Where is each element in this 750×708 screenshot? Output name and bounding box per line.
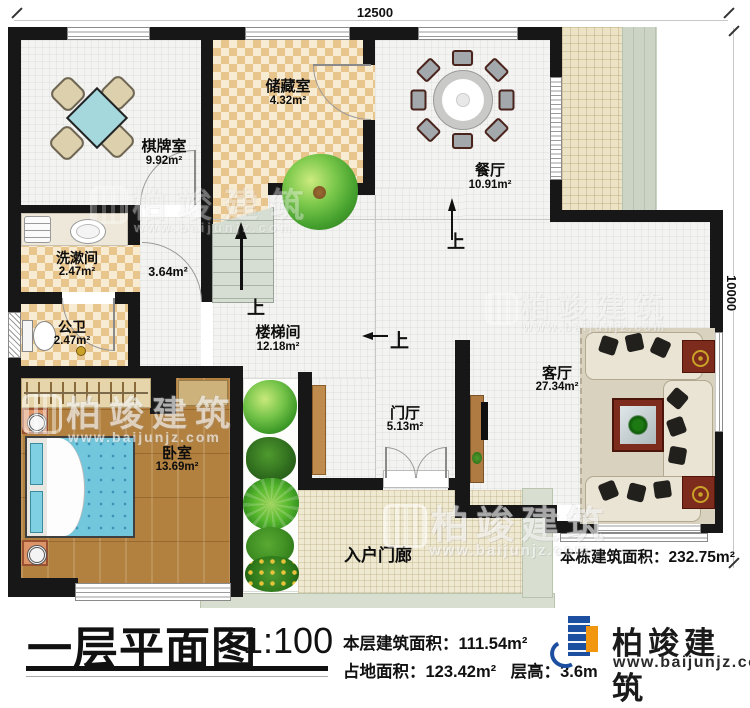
chair: [452, 50, 473, 66]
stat1-value: 111.54m²: [459, 635, 528, 653]
chair: [411, 90, 427, 111]
room-label: 入户门廊: [328, 547, 428, 566]
window: [550, 77, 562, 180]
floor-plan: 12500 10000: [0, 0, 750, 608]
pillow: [30, 443, 43, 485]
dimension-right-label: 10000: [724, 275, 739, 311]
wall: [455, 340, 470, 518]
pillow: [30, 491, 43, 533]
title-underline-thin: [26, 676, 328, 677]
wall: [350, 27, 418, 40]
watermark-logo-icon: [485, 292, 518, 325]
window: [245, 27, 350, 40]
wall: [710, 222, 723, 332]
wall: [8, 358, 21, 597]
room-area: 2.47m²: [45, 267, 109, 279]
up-arrow-head: [448, 198, 456, 211]
up-label: 上: [390, 326, 409, 353]
stat1-label: 本层建筑面积：: [343, 635, 459, 653]
stat2-label: 占地面积：: [343, 663, 426, 681]
bed: [25, 436, 135, 538]
room-area: 9.92m²: [134, 156, 194, 168]
window: [418, 27, 518, 40]
door-leaf: [113, 298, 115, 351]
shoe-cabinet: [312, 385, 326, 475]
wall: [298, 372, 312, 478]
entry-door-leaf: [385, 447, 387, 478]
watermark-logo-icon: [383, 504, 427, 548]
sofa-pillow: [668, 446, 688, 466]
chair: [452, 133, 473, 149]
room-area: 13.69m²: [147, 462, 207, 474]
room-label: 棋牌室: [132, 139, 196, 156]
chair: [499, 90, 515, 111]
watermark-brand: 柏竣建筑: [431, 494, 611, 549]
sofa-pillow: [653, 480, 672, 499]
table-plant: [628, 415, 648, 435]
room-label: 公卫: [47, 320, 97, 335]
wall: [8, 578, 78, 597]
washing-machine: [24, 216, 51, 243]
end-table-medallion: [692, 486, 709, 503]
plant-flowering: [245, 556, 299, 592]
wall: [550, 40, 562, 77]
floor-plan-page: { "dimensions": { "top": "12500", "right…: [0, 0, 750, 686]
dimension-tick: [728, 25, 739, 36]
plant-small: [472, 452, 482, 464]
door-leaf: [313, 64, 371, 66]
room-area: 5.13m²: [379, 422, 431, 434]
wall: [21, 292, 62, 304]
up-arrow-line: [372, 335, 388, 337]
dimension-top-label: 12500: [340, 5, 410, 20]
room-area: 12.18m²: [243, 342, 313, 354]
wall: [150, 27, 245, 40]
watermark-logo-icon: [90, 186, 128, 224]
tv: [481, 402, 488, 440]
room-label: 洗漱间: [42, 251, 112, 266]
up-arrow-head: [362, 332, 373, 340]
room-area: 2.47m²: [45, 336, 99, 348]
up-label: 上: [447, 228, 465, 254]
room-label: 楼梯间: [242, 325, 314, 342]
brand-logo: [550, 614, 606, 674]
watermark-url: www.baijunjz.com: [523, 320, 667, 334]
deck-tile: [562, 27, 622, 212]
watermark-logo-icon: [22, 394, 62, 434]
dimension-tick: [11, 7, 22, 18]
wall: [518, 27, 562, 40]
dimension-line-top: [14, 20, 728, 21]
watermark-url: www.baijunjz.com: [68, 429, 221, 445]
watermark-url: www.baijunjz.com: [134, 220, 294, 235]
room-label: 储藏室: [253, 79, 323, 96]
end-table-medallion: [692, 350, 709, 367]
entry-door-leaf: [445, 447, 447, 478]
wall: [8, 366, 243, 378]
up-label: 上: [247, 294, 265, 320]
stat2-value: 123.42m²: [426, 663, 497, 681]
room-area: 27.34m²: [527, 382, 587, 394]
lamp: [27, 545, 47, 565]
room-area: 3.64m²: [138, 266, 198, 279]
plant: [246, 437, 296, 481]
stair-direction-line: [240, 238, 243, 290]
dining-table-center: [456, 93, 470, 107]
wall: [201, 27, 213, 302]
plant-palm: [243, 478, 299, 530]
watermark-url: www.baijunjz.com: [429, 542, 590, 559]
wall: [8, 27, 21, 312]
sofa-pillow: [624, 332, 644, 352]
wall: [298, 478, 383, 490]
wall: [562, 210, 723, 222]
room-area: 10.91m²: [455, 180, 525, 192]
title-underline: [26, 666, 328, 671]
room-area: 4.32m²: [253, 96, 323, 108]
room-label: 餐厅: [458, 163, 522, 180]
nightstand: [22, 540, 48, 566]
window-hatched: [8, 312, 21, 358]
dimension-tick: [723, 7, 734, 18]
door-knob: [76, 346, 86, 356]
toilet-tank: [22, 320, 33, 352]
wall: [115, 292, 140, 304]
logo-building-icon-orange: [586, 626, 598, 652]
wall: [550, 180, 562, 222]
wall: [363, 40, 375, 65]
window: [67, 27, 150, 40]
stat-line-1: 本层建筑面积：111.54m²: [343, 630, 527, 654]
deck-planks: [622, 27, 657, 212]
sink-basin: [76, 224, 100, 239]
tree: [243, 380, 297, 434]
brand-url: www.baijunjz.com: [613, 654, 750, 672]
footer: 一层平面图 1:100 本层建筑面积：111.54m² 占地面积：123.42m…: [0, 608, 750, 686]
window-sill: [75, 583, 231, 601]
plan-scale: 1:100: [243, 620, 333, 662]
